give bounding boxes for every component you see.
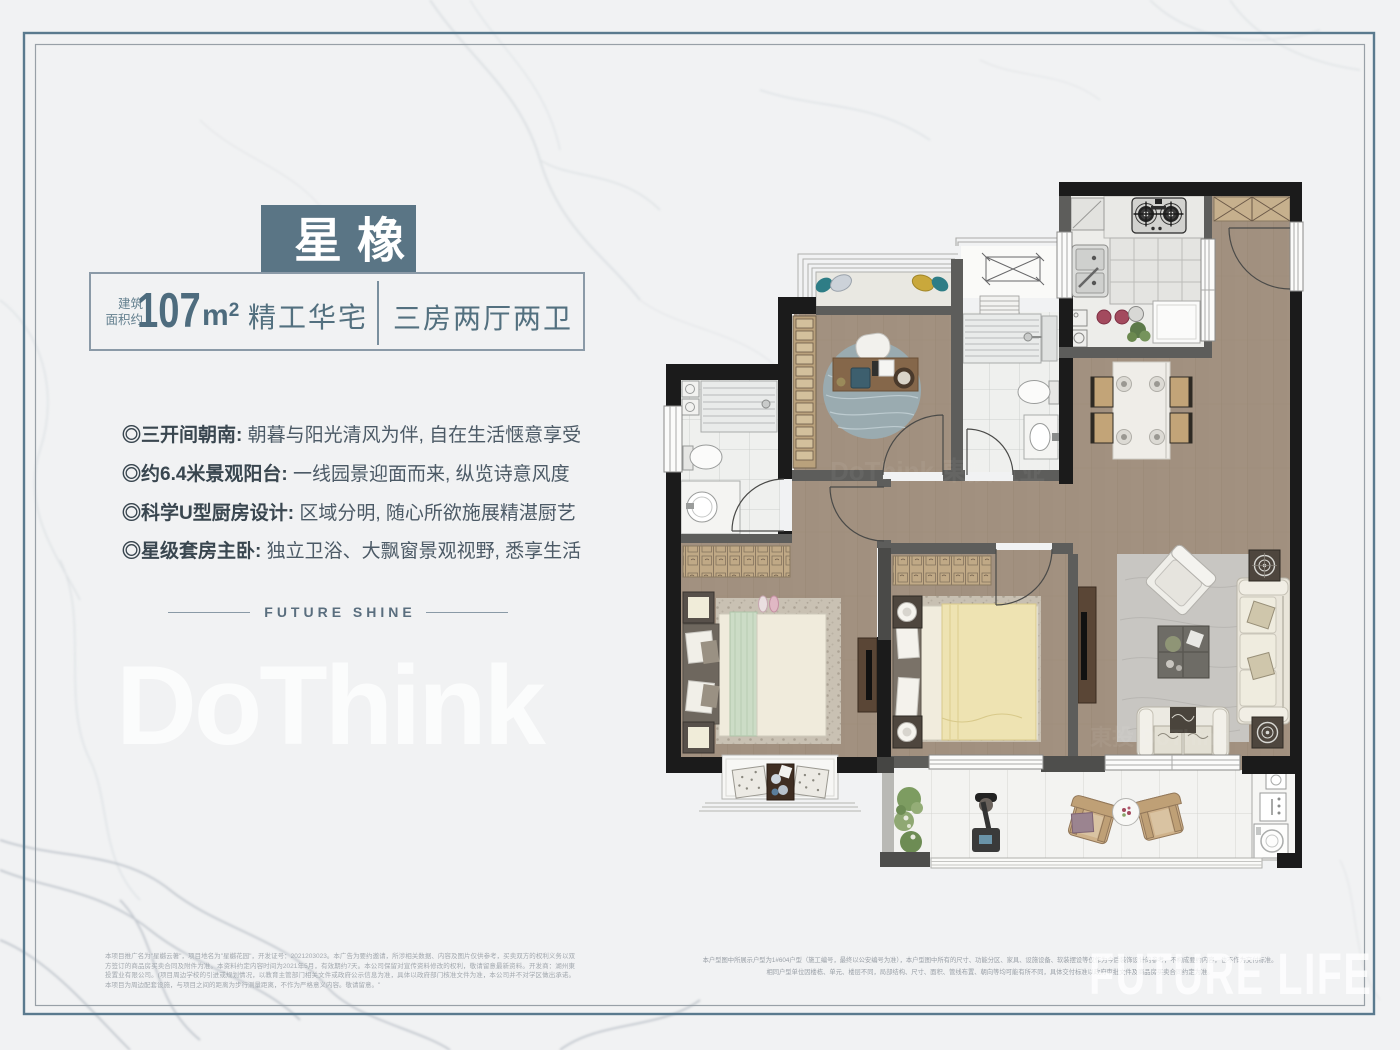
svg-text:東投 DoThink: 東投 DoThink [1090,725,1229,750]
